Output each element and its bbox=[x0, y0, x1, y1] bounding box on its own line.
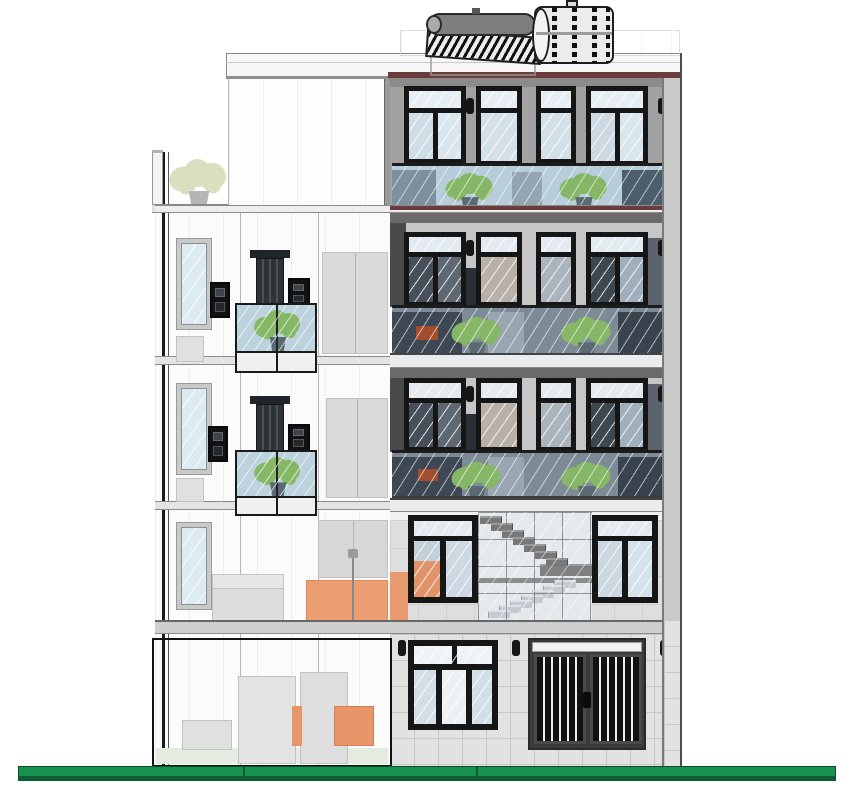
appliance-screen bbox=[215, 302, 225, 312]
floor4-door-b bbox=[586, 232, 648, 307]
section-window-glass bbox=[181, 527, 207, 605]
floor2-floor-lamp bbox=[352, 556, 354, 622]
floor2-window-left bbox=[408, 515, 478, 603]
window-pane-dark bbox=[409, 403, 433, 447]
floor4-section-window bbox=[176, 238, 212, 330]
door-pane bbox=[620, 113, 643, 161]
floor4-slab bbox=[390, 353, 682, 368]
appliance-screen bbox=[213, 432, 223, 441]
building-right-outline bbox=[680, 53, 682, 767]
window-pane-light bbox=[442, 670, 466, 724]
window-pane bbox=[541, 257, 571, 302]
floor1-orange-strip bbox=[292, 706, 302, 746]
floor3-door-a bbox=[476, 378, 522, 452]
window-transom bbox=[541, 383, 571, 403]
glass-hatch bbox=[237, 305, 315, 351]
window-transom bbox=[541, 237, 571, 257]
cabinet-door-line bbox=[355, 253, 356, 353]
floor3-flue-cap bbox=[250, 396, 290, 404]
floor1-window bbox=[408, 640, 498, 730]
water-tank-end-cap bbox=[532, 8, 550, 62]
topfloor-section-room bbox=[228, 79, 386, 205]
floor1-orange-cabinet bbox=[334, 706, 374, 746]
floor2-orange-sofa bbox=[306, 580, 388, 624]
solar-heater-tank bbox=[428, 13, 536, 36]
floor1-low-cabinet bbox=[182, 720, 232, 750]
floor3-appliance-stack bbox=[208, 426, 228, 462]
terrace-parapet bbox=[152, 150, 163, 212]
garage-gate bbox=[528, 638, 646, 750]
window-transom bbox=[409, 237, 461, 257]
floor4-wall-top-band bbox=[390, 213, 682, 223]
transom-mullion bbox=[452, 646, 457, 670]
glass-hatch bbox=[392, 308, 682, 353]
glass-hatch bbox=[478, 512, 592, 620]
door-transom bbox=[591, 237, 643, 257]
window-pane-orange bbox=[414, 541, 440, 597]
floor2-section-window bbox=[176, 522, 212, 610]
floor3-side-balcony-slab bbox=[235, 498, 317, 516]
door-pane bbox=[481, 113, 517, 161]
floor4-side-balcony bbox=[235, 303, 317, 353]
floor3-balcony-glass-rail bbox=[392, 450, 682, 498]
glass-hatch bbox=[237, 452, 315, 496]
right-return-wall-tiles bbox=[664, 620, 680, 767]
floor2-slab bbox=[155, 620, 682, 634]
ground-strip bbox=[18, 766, 836, 781]
floor4-window-a bbox=[404, 232, 466, 307]
appliance-screen bbox=[293, 295, 304, 303]
door-pane bbox=[481, 403, 517, 447]
window-transom bbox=[409, 383, 461, 403]
door-pane-dark bbox=[591, 403, 615, 447]
floor3-wall-top-band bbox=[390, 368, 682, 378]
floor4-flue-cap bbox=[250, 250, 290, 258]
window-pane bbox=[598, 541, 622, 597]
floor3-appliance-stack bbox=[288, 424, 310, 452]
gate-leaf-left bbox=[534, 654, 586, 744]
section-window-glass bbox=[181, 243, 207, 325]
water-tank-ring bbox=[592, 7, 597, 63]
floor5-slab-maroon-line bbox=[390, 206, 682, 210]
floor1-cabinet bbox=[238, 676, 296, 764]
slab-divider bbox=[276, 498, 278, 514]
floor3-window-b bbox=[536, 378, 576, 452]
elevation-drawing-canvas bbox=[0, 0, 861, 789]
door-transom bbox=[481, 237, 517, 257]
window-transom bbox=[414, 521, 472, 541]
window-transom bbox=[598, 521, 652, 541]
window-pane-dark bbox=[438, 257, 461, 302]
floor5-balcony-glass-rail bbox=[392, 163, 682, 208]
water-tank-ring bbox=[572, 7, 577, 63]
window-pane bbox=[472, 670, 492, 724]
solar-heater-tank-cap bbox=[426, 15, 442, 34]
window-pane bbox=[446, 541, 472, 597]
window-pane bbox=[628, 541, 652, 597]
window-pane bbox=[438, 113, 461, 159]
glass-hatch bbox=[392, 453, 682, 496]
window-pane-dark bbox=[438, 403, 461, 447]
door-pane bbox=[591, 113, 615, 161]
gate-header bbox=[532, 642, 642, 652]
appliance-screen bbox=[215, 288, 225, 297]
floor2-window-right bbox=[592, 515, 658, 603]
window-transom bbox=[541, 91, 571, 113]
wall-lamp-icon bbox=[466, 386, 474, 402]
slab-divider bbox=[276, 353, 278, 371]
floor4-door-a bbox=[476, 232, 522, 307]
door-pane bbox=[620, 403, 643, 447]
section-window-glass bbox=[181, 388, 207, 470]
door-transom bbox=[481, 383, 517, 403]
window-pane bbox=[409, 113, 433, 159]
door-transom bbox=[481, 91, 517, 113]
appliance-screen bbox=[293, 439, 304, 446]
floor2-floor-lamp-head bbox=[348, 549, 358, 558]
gate-leaf-right bbox=[590, 654, 642, 744]
floor4-washer bbox=[176, 336, 204, 362]
cabinet-door-line bbox=[357, 399, 358, 497]
appliance-screen bbox=[213, 446, 223, 456]
floor3-section-window bbox=[176, 383, 212, 475]
floor4-appliance-stack bbox=[210, 282, 230, 318]
floor5-door-a bbox=[476, 86, 522, 166]
floor5-window-b bbox=[536, 86, 576, 164]
floor3-side-balcony bbox=[235, 450, 317, 498]
glass-hatch bbox=[392, 166, 682, 206]
door-pane-dark bbox=[591, 257, 615, 302]
floor4-balcony-glass-rail bbox=[392, 305, 682, 355]
wall-lamp-icon bbox=[512, 640, 520, 656]
wall-lamp-icon bbox=[398, 640, 406, 656]
ground-strip-tick bbox=[243, 766, 245, 781]
floor4-cabinet bbox=[322, 252, 388, 354]
door-pane bbox=[620, 257, 643, 302]
floor2-orange-patch bbox=[390, 572, 408, 620]
appliance-screen bbox=[293, 429, 304, 436]
floor2-sofa bbox=[212, 588, 284, 622]
water-tank-ring bbox=[606, 7, 610, 63]
floor4-side-balcony-slab bbox=[235, 353, 317, 373]
floor4-window-b bbox=[536, 232, 576, 307]
door-transom bbox=[591, 91, 643, 113]
wall-lamp-icon bbox=[466, 98, 474, 114]
ground-strip-tick bbox=[476, 766, 478, 781]
window-transom bbox=[409, 91, 461, 113]
wall-lamp-icon bbox=[466, 240, 474, 256]
door-transom bbox=[591, 383, 643, 403]
floor5-window-a bbox=[404, 86, 466, 164]
window-pane-dark bbox=[409, 257, 433, 302]
water-tank-ring bbox=[552, 7, 557, 63]
window-pane bbox=[541, 113, 571, 159]
stair-glass-wall bbox=[478, 512, 592, 620]
floor3-door-b bbox=[586, 378, 648, 452]
door-pane bbox=[481, 257, 517, 302]
window-pane bbox=[541, 403, 571, 447]
floor3-cabinet bbox=[326, 398, 388, 498]
floor3-slab bbox=[390, 498, 682, 512]
water-tank-lid bbox=[566, 0, 578, 8]
floor5-door-b bbox=[586, 86, 648, 166]
window-transom bbox=[414, 646, 492, 670]
terrace-plant bbox=[168, 158, 230, 208]
water-tank-band-horizontal bbox=[536, 32, 612, 35]
solar-heater-vent bbox=[472, 8, 480, 14]
appliance-screen bbox=[293, 284, 304, 291]
floor3-washer bbox=[176, 478, 204, 502]
window-pane bbox=[414, 670, 436, 724]
floor3-window-a bbox=[404, 378, 466, 452]
gate-handle bbox=[583, 692, 591, 708]
